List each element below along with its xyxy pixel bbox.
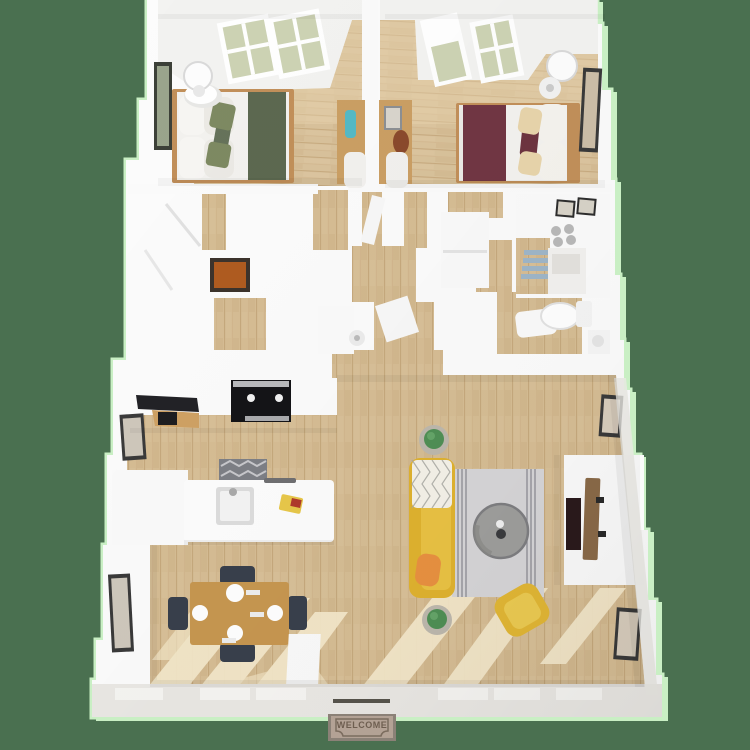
svg-text:WELCOME: WELCOME (337, 720, 388, 730)
